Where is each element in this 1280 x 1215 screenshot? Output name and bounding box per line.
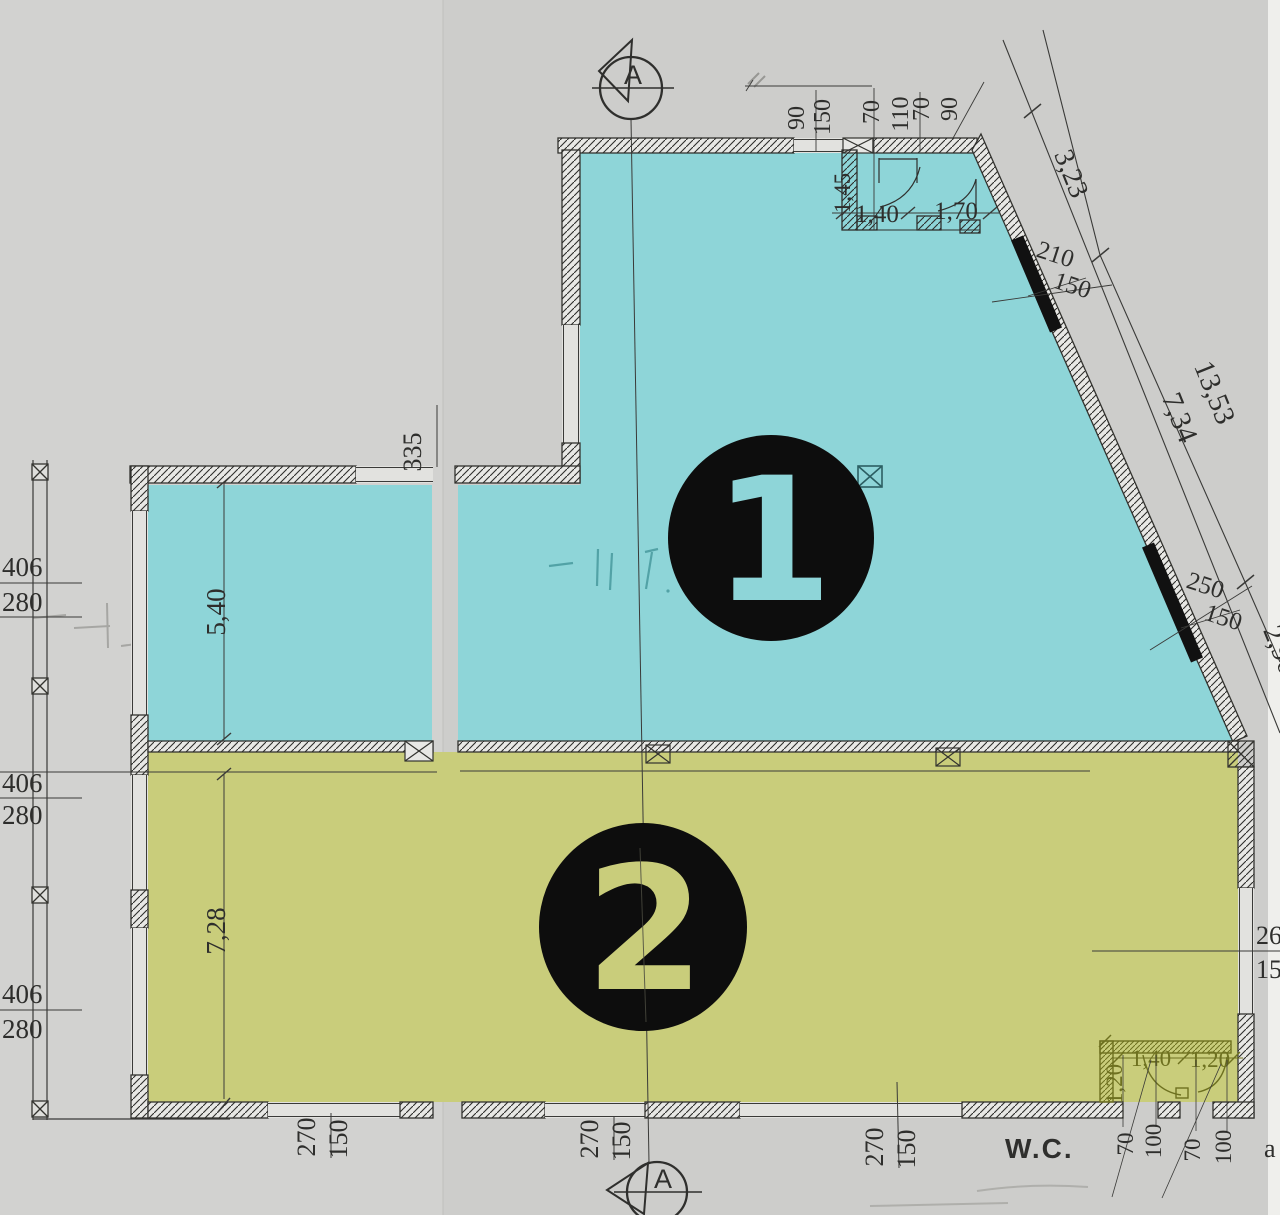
dim-label: 260 — [1256, 921, 1280, 950]
floor-plan-drawing: 90 150 70 110 70 90 1,45 1,40 1,70 3,23 … — [0, 0, 1280, 1215]
dim-label: 335 — [398, 433, 427, 472]
column-x-icon — [32, 1101, 48, 1117]
zone-2-badge: 2 — [539, 823, 747, 1031]
dim-label: 1,45 — [830, 173, 855, 213]
dim-label: 280 — [2, 587, 43, 617]
dim-label: 1,40 — [855, 201, 899, 228]
dim-label: 406 — [2, 552, 43, 582]
dim-label: 406 — [2, 768, 43, 798]
dim-label: 280 — [2, 800, 43, 830]
dim-label: 270 — [292, 1118, 321, 1157]
dim-label: 150 — [810, 99, 836, 135]
dim-label: 100 — [1141, 1124, 1166, 1159]
corner-junction-box — [1228, 741, 1254, 767]
edge-text-fragment: a — [1264, 1134, 1276, 1163]
column-x-icon — [32, 678, 48, 694]
dim-label: 270 — [860, 1128, 889, 1167]
dim-label: 1,40 — [1131, 1046, 1171, 1071]
dim-label: 280 — [2, 1014, 43, 1044]
dim-label: 100 — [1211, 1130, 1236, 1165]
dim-label: 406 — [2, 979, 43, 1009]
divider-x-box — [405, 741, 433, 761]
dim-label: 70 — [1180, 1139, 1205, 1162]
section-letter: A — [624, 60, 642, 90]
dim-label: 90 — [784, 106, 810, 130]
dim-label: 90 — [937, 97, 963, 121]
dim-label: 70 — [909, 97, 935, 121]
column-x-icon — [32, 464, 48, 480]
column-x-icon — [32, 887, 48, 903]
floor-plan-screenshot: 90 150 70 110 70 90 1,45 1,40 1,70 3,23 … — [0, 0, 1280, 1215]
dim-label: 150 — [1256, 955, 1280, 984]
dim-label: 270 — [575, 1120, 604, 1159]
zone-1-number: 1 — [713, 440, 833, 641]
dim-label: 70 — [859, 100, 885, 124]
dim-label: 7,28 — [201, 907, 231, 954]
dim-label: 5,40 — [201, 588, 231, 635]
wc-title: W.C. — [1005, 1133, 1074, 1164]
dim-label: 70 — [1113, 1133, 1138, 1156]
zone-1-badge: 1 — [668, 435, 874, 641]
zone-1-left-arm — [148, 485, 432, 741]
dim-label: 1,70 — [934, 198, 978, 225]
paper-edge-strip — [1268, 0, 1280, 1215]
section-letter: A — [654, 1164, 672, 1194]
dim-label: 150 — [892, 1130, 921, 1169]
dim-label: 150 — [607, 1122, 636, 1161]
dim-label: 150 — [324, 1120, 353, 1159]
